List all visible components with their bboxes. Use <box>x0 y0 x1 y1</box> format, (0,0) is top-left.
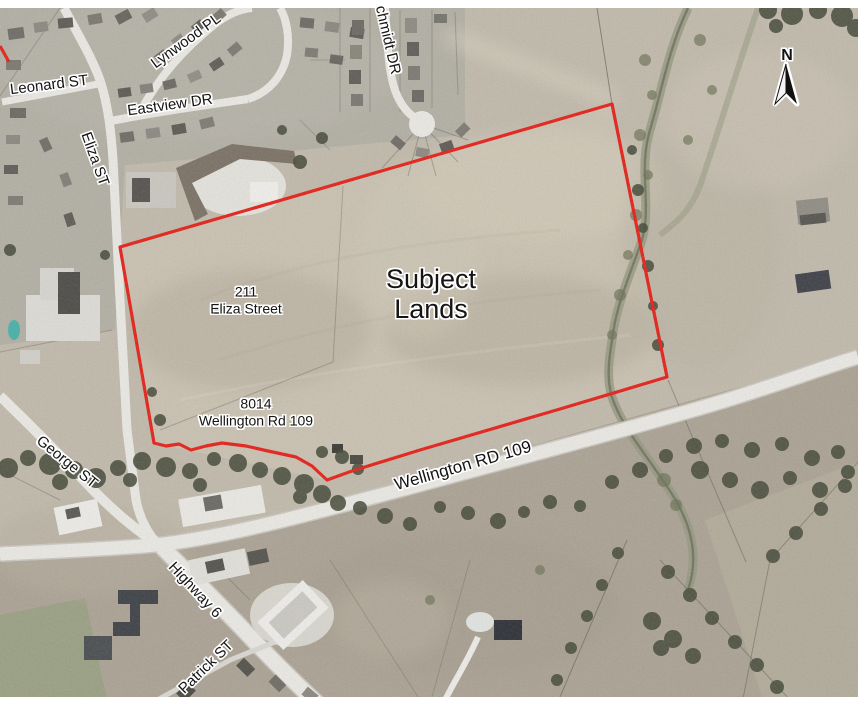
subject-lands-label: Subject Lands <box>386 264 476 324</box>
aerial-map-figure: Leonard ST Lynwood PL Eastview DR Eliza … <box>0 0 866 704</box>
north-label: N <box>781 47 793 65</box>
parcel-label-211: 211 Eliza Street <box>210 283 282 316</box>
subject-lands-line1: Subject <box>386 264 476 294</box>
parcel-label-8014: 8014 Wellington Rd 109 <box>199 395 313 428</box>
subject-lands-line2: Lands <box>386 294 476 324</box>
parcel-8014-street: Wellington Rd 109 <box>199 412 313 429</box>
parcel-211-number: 211 <box>210 283 282 300</box>
parcel-211-street: Eliza Street <box>210 300 282 317</box>
parcel-8014-number: 8014 <box>199 395 313 412</box>
